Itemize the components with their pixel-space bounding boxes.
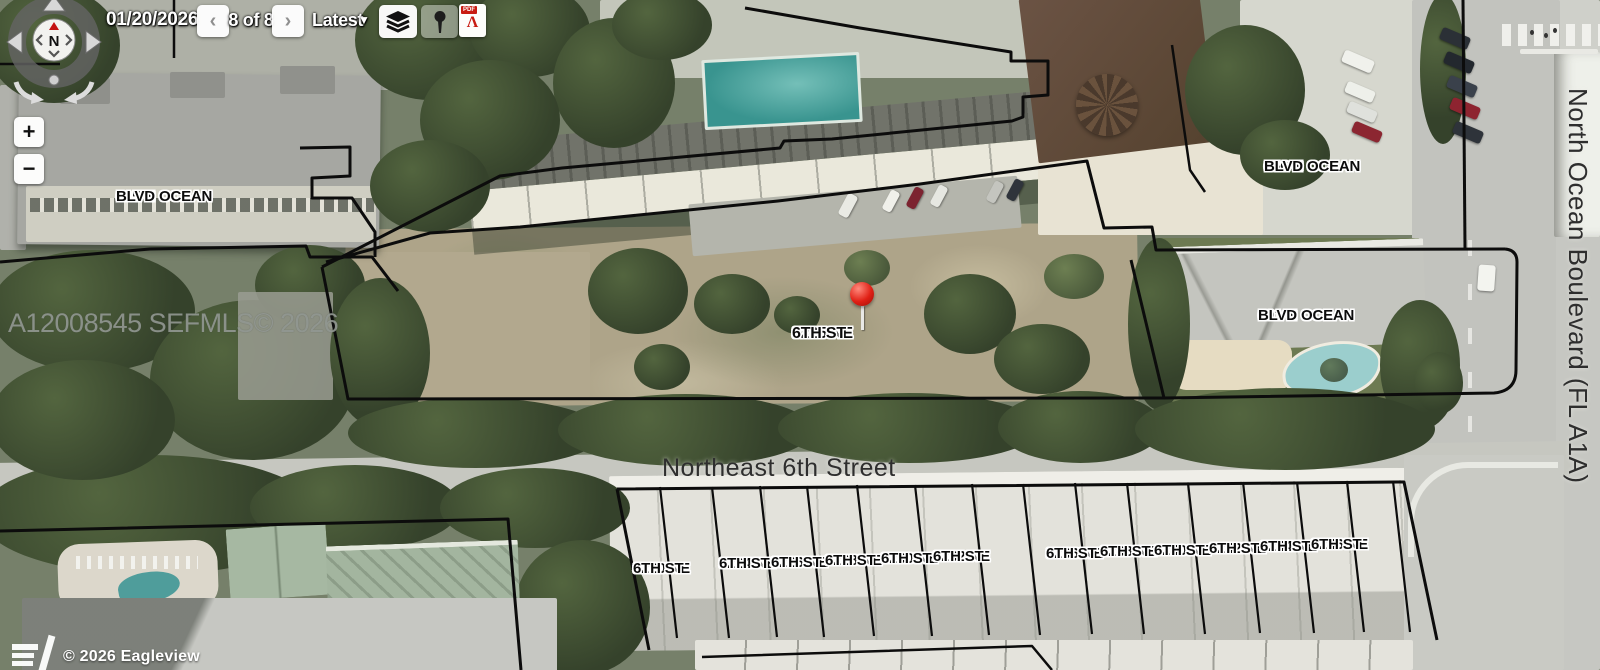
parcel-line-subject xyxy=(322,260,1164,399)
key-icon xyxy=(429,10,451,34)
zoom-out-button[interactable]: − xyxy=(14,154,44,184)
compass-north-label: N xyxy=(49,33,60,50)
parcel-line xyxy=(0,246,398,291)
street-label-ne-6th: Northeast 6th Street xyxy=(662,454,896,483)
pin-head xyxy=(850,282,874,306)
map-attribution: © 2026 Eagleview xyxy=(63,648,200,666)
eagleview-logo xyxy=(10,641,62,670)
pin-stem xyxy=(861,306,864,330)
acrobat-glyph: Λ xyxy=(459,14,486,32)
compass-rose[interactable]: N xyxy=(2,0,106,104)
aerial-map-viewer[interactable]: 615 N OCEANBLVD 656 N OCEANBLVD 601 N OC… xyxy=(0,0,1600,670)
prev-image-button[interactable]: ‹ xyxy=(197,5,229,37)
layers-icon xyxy=(386,11,410,33)
imagery-date: 01/20/2026 xyxy=(106,9,198,31)
export-pdf-button[interactable]: PDF Λ xyxy=(459,4,486,37)
zoom-in-button[interactable]: + xyxy=(14,117,44,147)
parcel-line xyxy=(300,147,375,257)
pdf-label: PDF xyxy=(461,6,477,14)
mls-watermark: A12008545 SEFMLS© 2026 xyxy=(8,308,338,339)
next-image-button[interactable]: › xyxy=(272,5,304,37)
parcel-line xyxy=(322,8,1048,267)
street-label-n-ocean-blvd: North Ocean Boulevard (FL A1A) xyxy=(1562,88,1593,578)
chevron-down-icon[interactable]: ▼ xyxy=(358,13,370,27)
layers-button[interactable] xyxy=(379,5,417,38)
compass-knob xyxy=(49,75,59,85)
page-indicator: 8 of 8 xyxy=(228,10,274,31)
parcel-line xyxy=(702,646,1052,670)
layer-dropdown[interactable]: Latest xyxy=(312,10,363,31)
parcel-line xyxy=(1463,0,1465,248)
streetview-key-button[interactable] xyxy=(421,5,458,38)
parcel-line xyxy=(1172,45,1205,192)
